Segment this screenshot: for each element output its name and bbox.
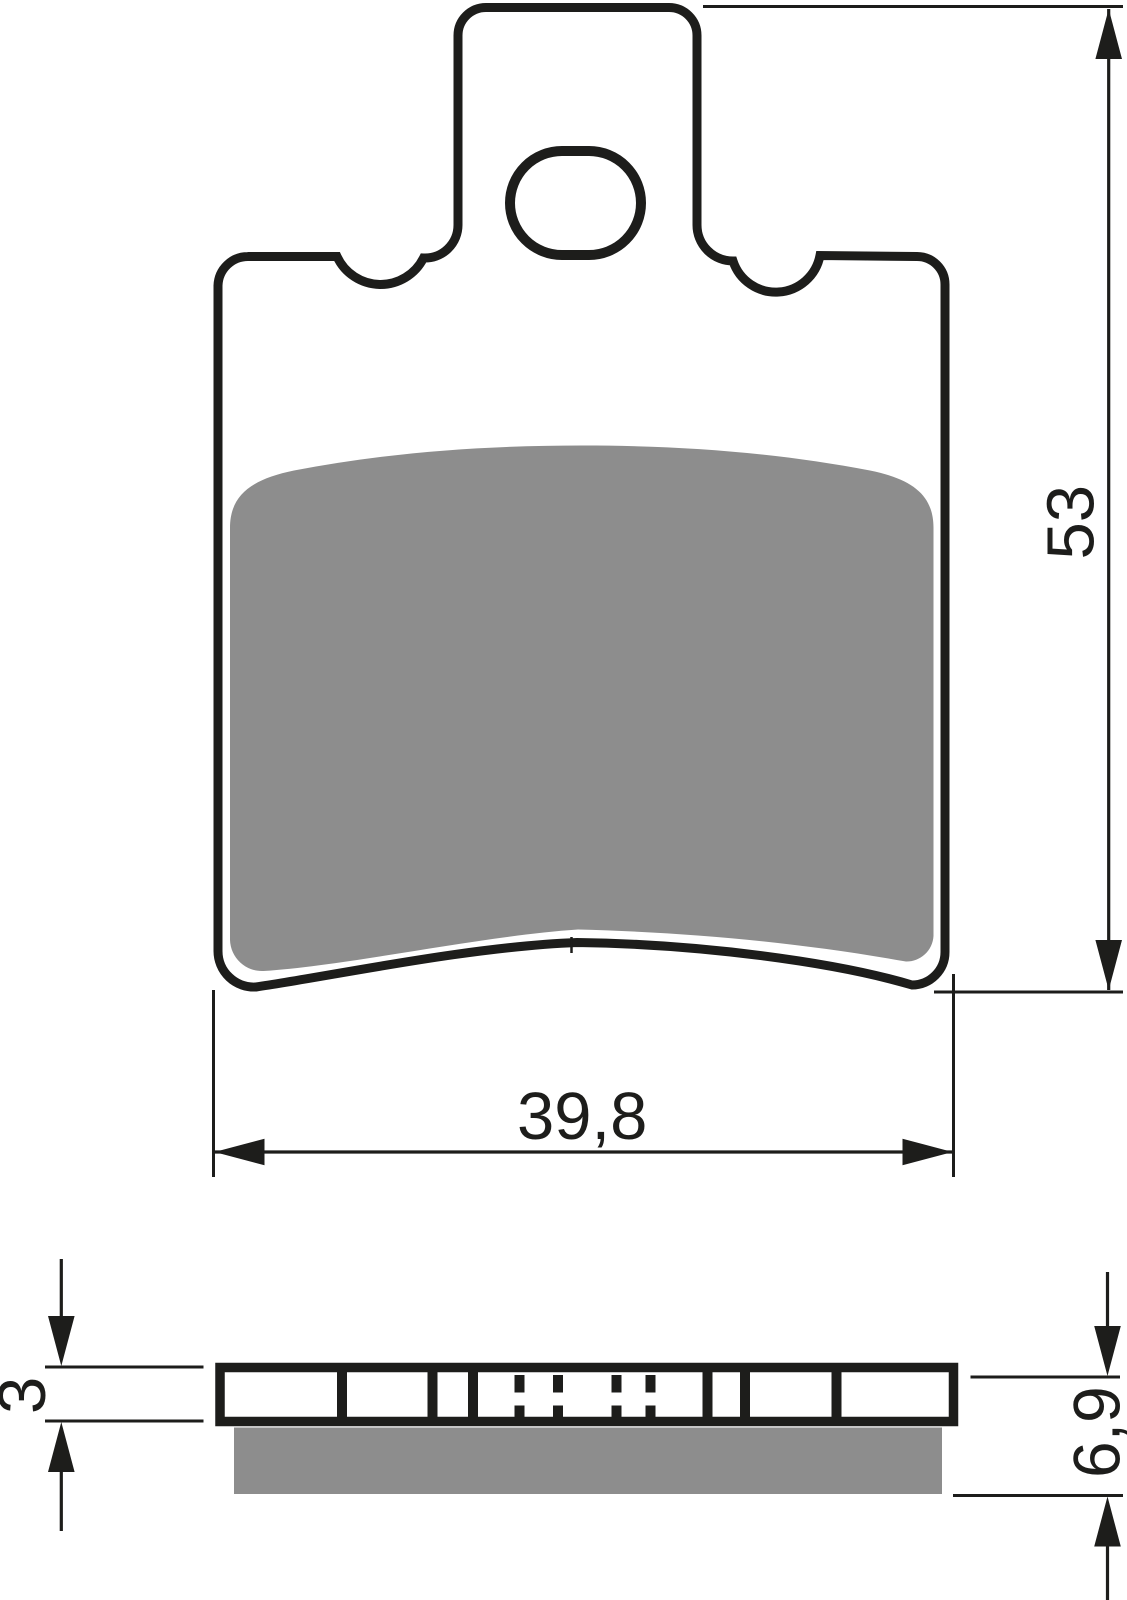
svg-text:39,8: 39,8 (517, 1079, 647, 1154)
svg-text:53: 53 (1034, 485, 1109, 560)
svg-text:3: 3 (0, 1377, 60, 1414)
svg-text:6,9: 6,9 (1060, 1386, 1127, 1478)
